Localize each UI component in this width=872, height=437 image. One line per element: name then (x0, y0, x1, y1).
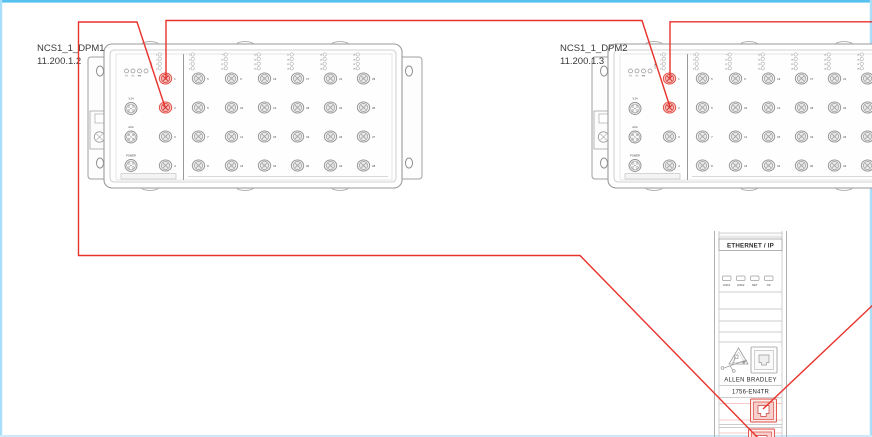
device2-name: NCS1_1_DPM2 (560, 43, 628, 54)
viewport-border-top (0, 0, 872, 3)
switch-device-dpm1[interactable] (88, 42, 422, 191)
viewport-border-left (0, 0, 2, 437)
led-net (751, 276, 760, 281)
device2-ip: 11.200.1.3 (560, 56, 604, 67)
controller-1756-en4tr[interactable]: ETHERNET / IP LINK1 LINK2 NET OK (715, 231, 787, 437)
led-ok (765, 276, 774, 281)
switch-device-dpm2[interactable] (592, 42, 872, 191)
topology-canvas: P1P2RMFAULTV.24ACAPOWER11223344556677889… (0, 0, 872, 437)
connection-offscreen-controller[interactable] (763, 302, 872, 409)
device1-name: NCS1_1_DPM1 (37, 43, 105, 54)
module-top-cap (719, 233, 782, 237)
brand-label: ALLEN BRADLEY (724, 378, 777, 384)
led-link2 (737, 276, 746, 281)
led-label: OK (767, 283, 771, 287)
module-status-leds: LINK1 LINK2 NET OK (723, 276, 774, 287)
module-header-label: ETHERNET / IP (727, 243, 774, 250)
led-link1 (723, 276, 732, 281)
module-section-lines (719, 292, 782, 342)
rj45-frame-icon (751, 347, 777, 373)
controller-port-top[interactable] (719, 399, 782, 422)
network-topology-view: P1P2RMFAULTV.24ACAPOWER11223344556677889… (0, 0, 872, 437)
led-label: LINK2 (737, 283, 745, 287)
led-label: NET (752, 283, 758, 287)
module-icon-cluster (721, 347, 777, 373)
model-label: 1756-EN4TR (732, 390, 769, 396)
led-label: LINK1 (723, 283, 731, 287)
device1-ip: 11.200.1.2 (37, 56, 81, 67)
